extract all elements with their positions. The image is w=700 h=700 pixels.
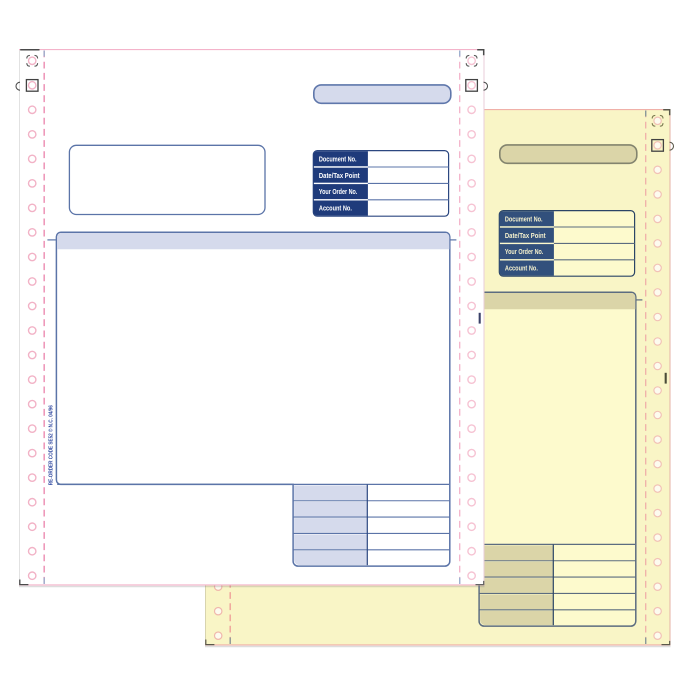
svg-text:RE-ORDER CODE SE52 © N.C. 04/9: RE-ORDER CODE SE52 © N.C. 04/96	[47, 405, 54, 485]
svg-text:Document No.: Document No.	[505, 216, 543, 223]
svg-text:Account No.: Account No.	[505, 265, 538, 272]
svg-text:Document No.: Document No.	[319, 157, 357, 164]
svg-text:Date/Tax Point: Date/Tax Point	[319, 173, 360, 180]
svg-text:Your Order No.: Your Order No.	[505, 249, 543, 256]
svg-text:Date/Tax Point: Date/Tax Point	[505, 232, 546, 239]
svg-text:Account No.: Account No.	[319, 206, 352, 213]
svg-text:Your Order No.: Your Order No.	[319, 189, 357, 196]
